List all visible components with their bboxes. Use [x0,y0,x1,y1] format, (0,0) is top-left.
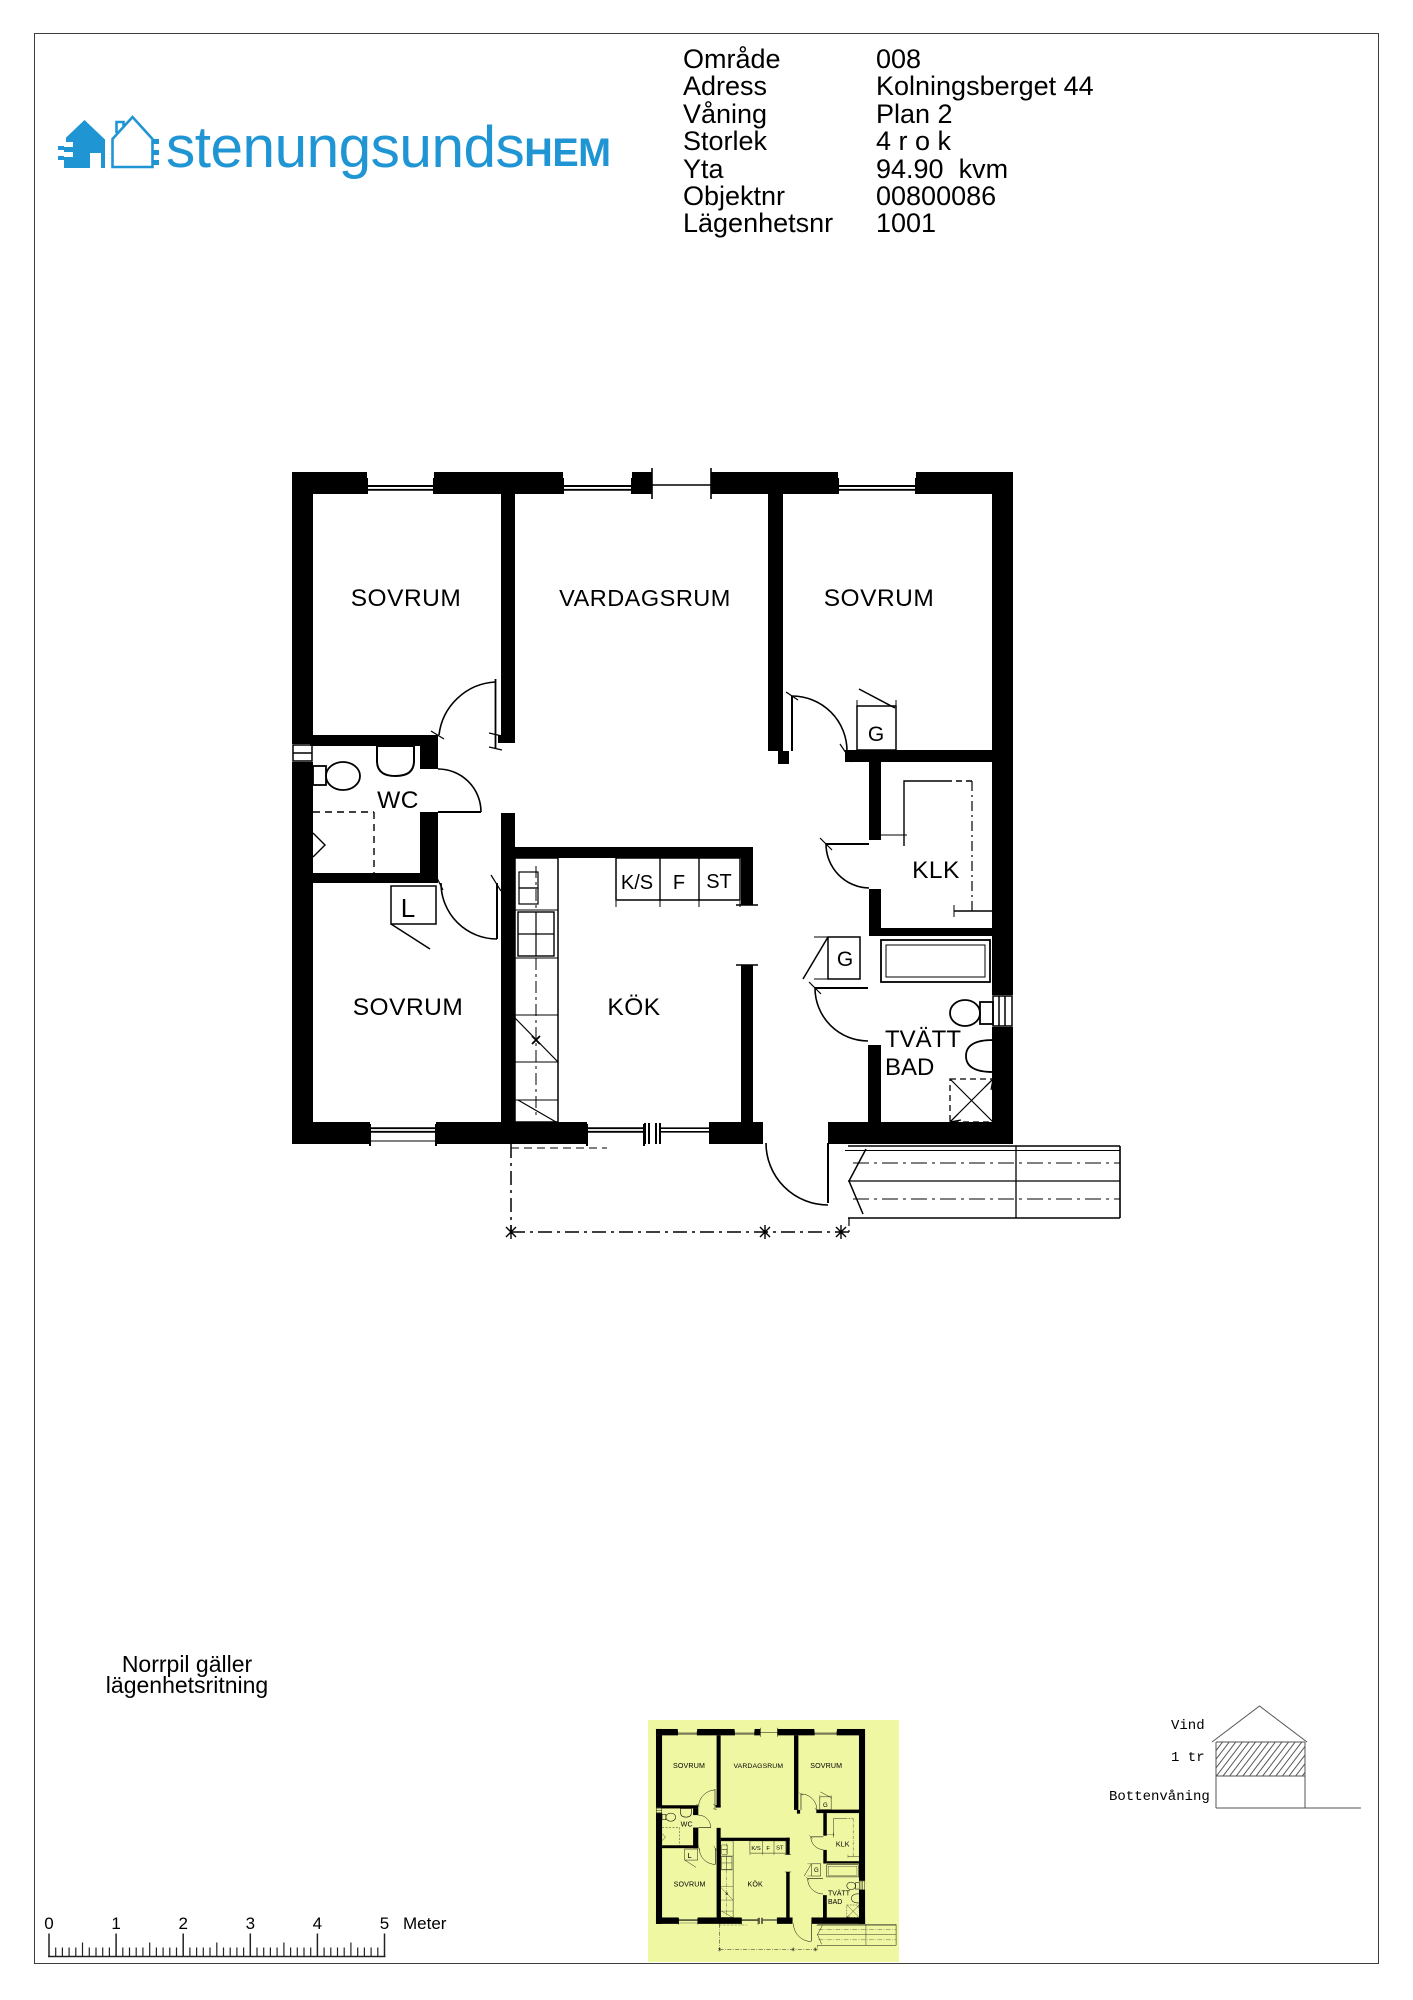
svg-text:Meter: Meter [403,1914,447,1933]
svg-text:F: F [673,872,685,894]
svg-text:0: 0 [44,1914,53,1933]
svg-text:3: 3 [246,1914,255,1933]
svg-text:G: G [868,723,884,746]
svg-text:K/S: K/S [621,872,653,894]
svg-text:Bottenvåning: Bottenvåning [1109,1789,1210,1805]
svg-text:VARDAGSRUM: VARDAGSRUM [559,585,731,611]
svg-text:1: 1 [111,1914,120,1933]
svg-text:WC: WC [377,787,419,814]
svg-text:1 tr: 1 tr [1171,1750,1205,1766]
svg-text:G: G [837,948,853,971]
svg-text:BAD: BAD [885,1054,934,1081]
svg-text:4: 4 [313,1914,322,1933]
svg-text:L: L [401,893,415,923]
svg-text:KLK: KLK [912,857,960,884]
svg-text:TVÄTT: TVÄTT [885,1026,961,1053]
svg-text:2: 2 [178,1914,187,1933]
svg-text:ST: ST [706,871,732,893]
svg-text:KÖK: KÖK [607,994,660,1021]
svg-text:Vind: Vind [1171,1718,1205,1734]
svg-text:SOVRUM: SOVRUM [353,994,464,1021]
svg-text:5: 5 [380,1914,389,1933]
svg-text:SOVRUM: SOVRUM [351,585,462,612]
svg-text:SOVRUM: SOVRUM [824,585,935,612]
